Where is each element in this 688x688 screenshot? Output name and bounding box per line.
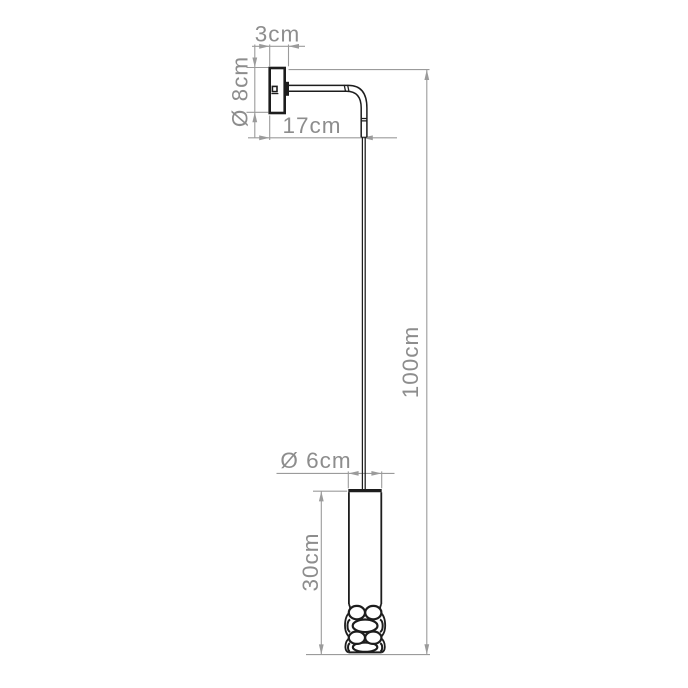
bubble-row2-center bbox=[353, 620, 378, 633]
dimension-labels: 3cm Ø 8cm 17cm 100cm Ø 6cm 30cm bbox=[228, 22, 424, 592]
arrowhead-arm-left bbox=[259, 135, 270, 140]
arrowhead-shade-height-top bbox=[319, 491, 324, 501]
arrowhead-plate-bottom bbox=[252, 112, 257, 122]
arm-connector bbox=[285, 82, 289, 95]
label-shade-diameter: Ø 6cm bbox=[280, 448, 351, 473]
mounting-screw bbox=[272, 86, 277, 91]
label-shade-height: 30cm bbox=[298, 532, 323, 591]
bubble-row1-left bbox=[349, 606, 365, 619]
arrowhead-drop-bottom bbox=[424, 644, 429, 654]
bubble-row1-right bbox=[365, 606, 381, 619]
arrowhead-shade-diameter-right bbox=[371, 471, 381, 476]
arrowhead-drop-top bbox=[424, 70, 429, 80]
arrowhead-shade-height-bottom bbox=[319, 644, 324, 654]
lamp-dimension-drawing: 3cm Ø 8cm 17cm 100cm Ø 6cm 30cm bbox=[0, 0, 688, 688]
bubble-row3-left bbox=[349, 632, 365, 644]
arrowhead-plate-top bbox=[252, 58, 257, 68]
label-plate-diameter: Ø 8cm bbox=[228, 56, 253, 127]
shade-bubble-pattern bbox=[349, 606, 382, 652]
label-bracket-depth: 3cm bbox=[255, 22, 301, 47]
lamp-fixture bbox=[270, 68, 386, 652]
drop-rod bbox=[362, 137, 365, 491]
bubble-row3-right bbox=[365, 632, 381, 644]
label-arm-projection: 17cm bbox=[282, 113, 341, 138]
elbow-sleeve-seam bbox=[361, 119, 367, 121]
dimension-diagram: 3cm Ø 8cm 17cm 100cm Ø 6cm 30cm bbox=[0, 0, 688, 688]
label-overall-drop: 100cm bbox=[398, 326, 423, 399]
